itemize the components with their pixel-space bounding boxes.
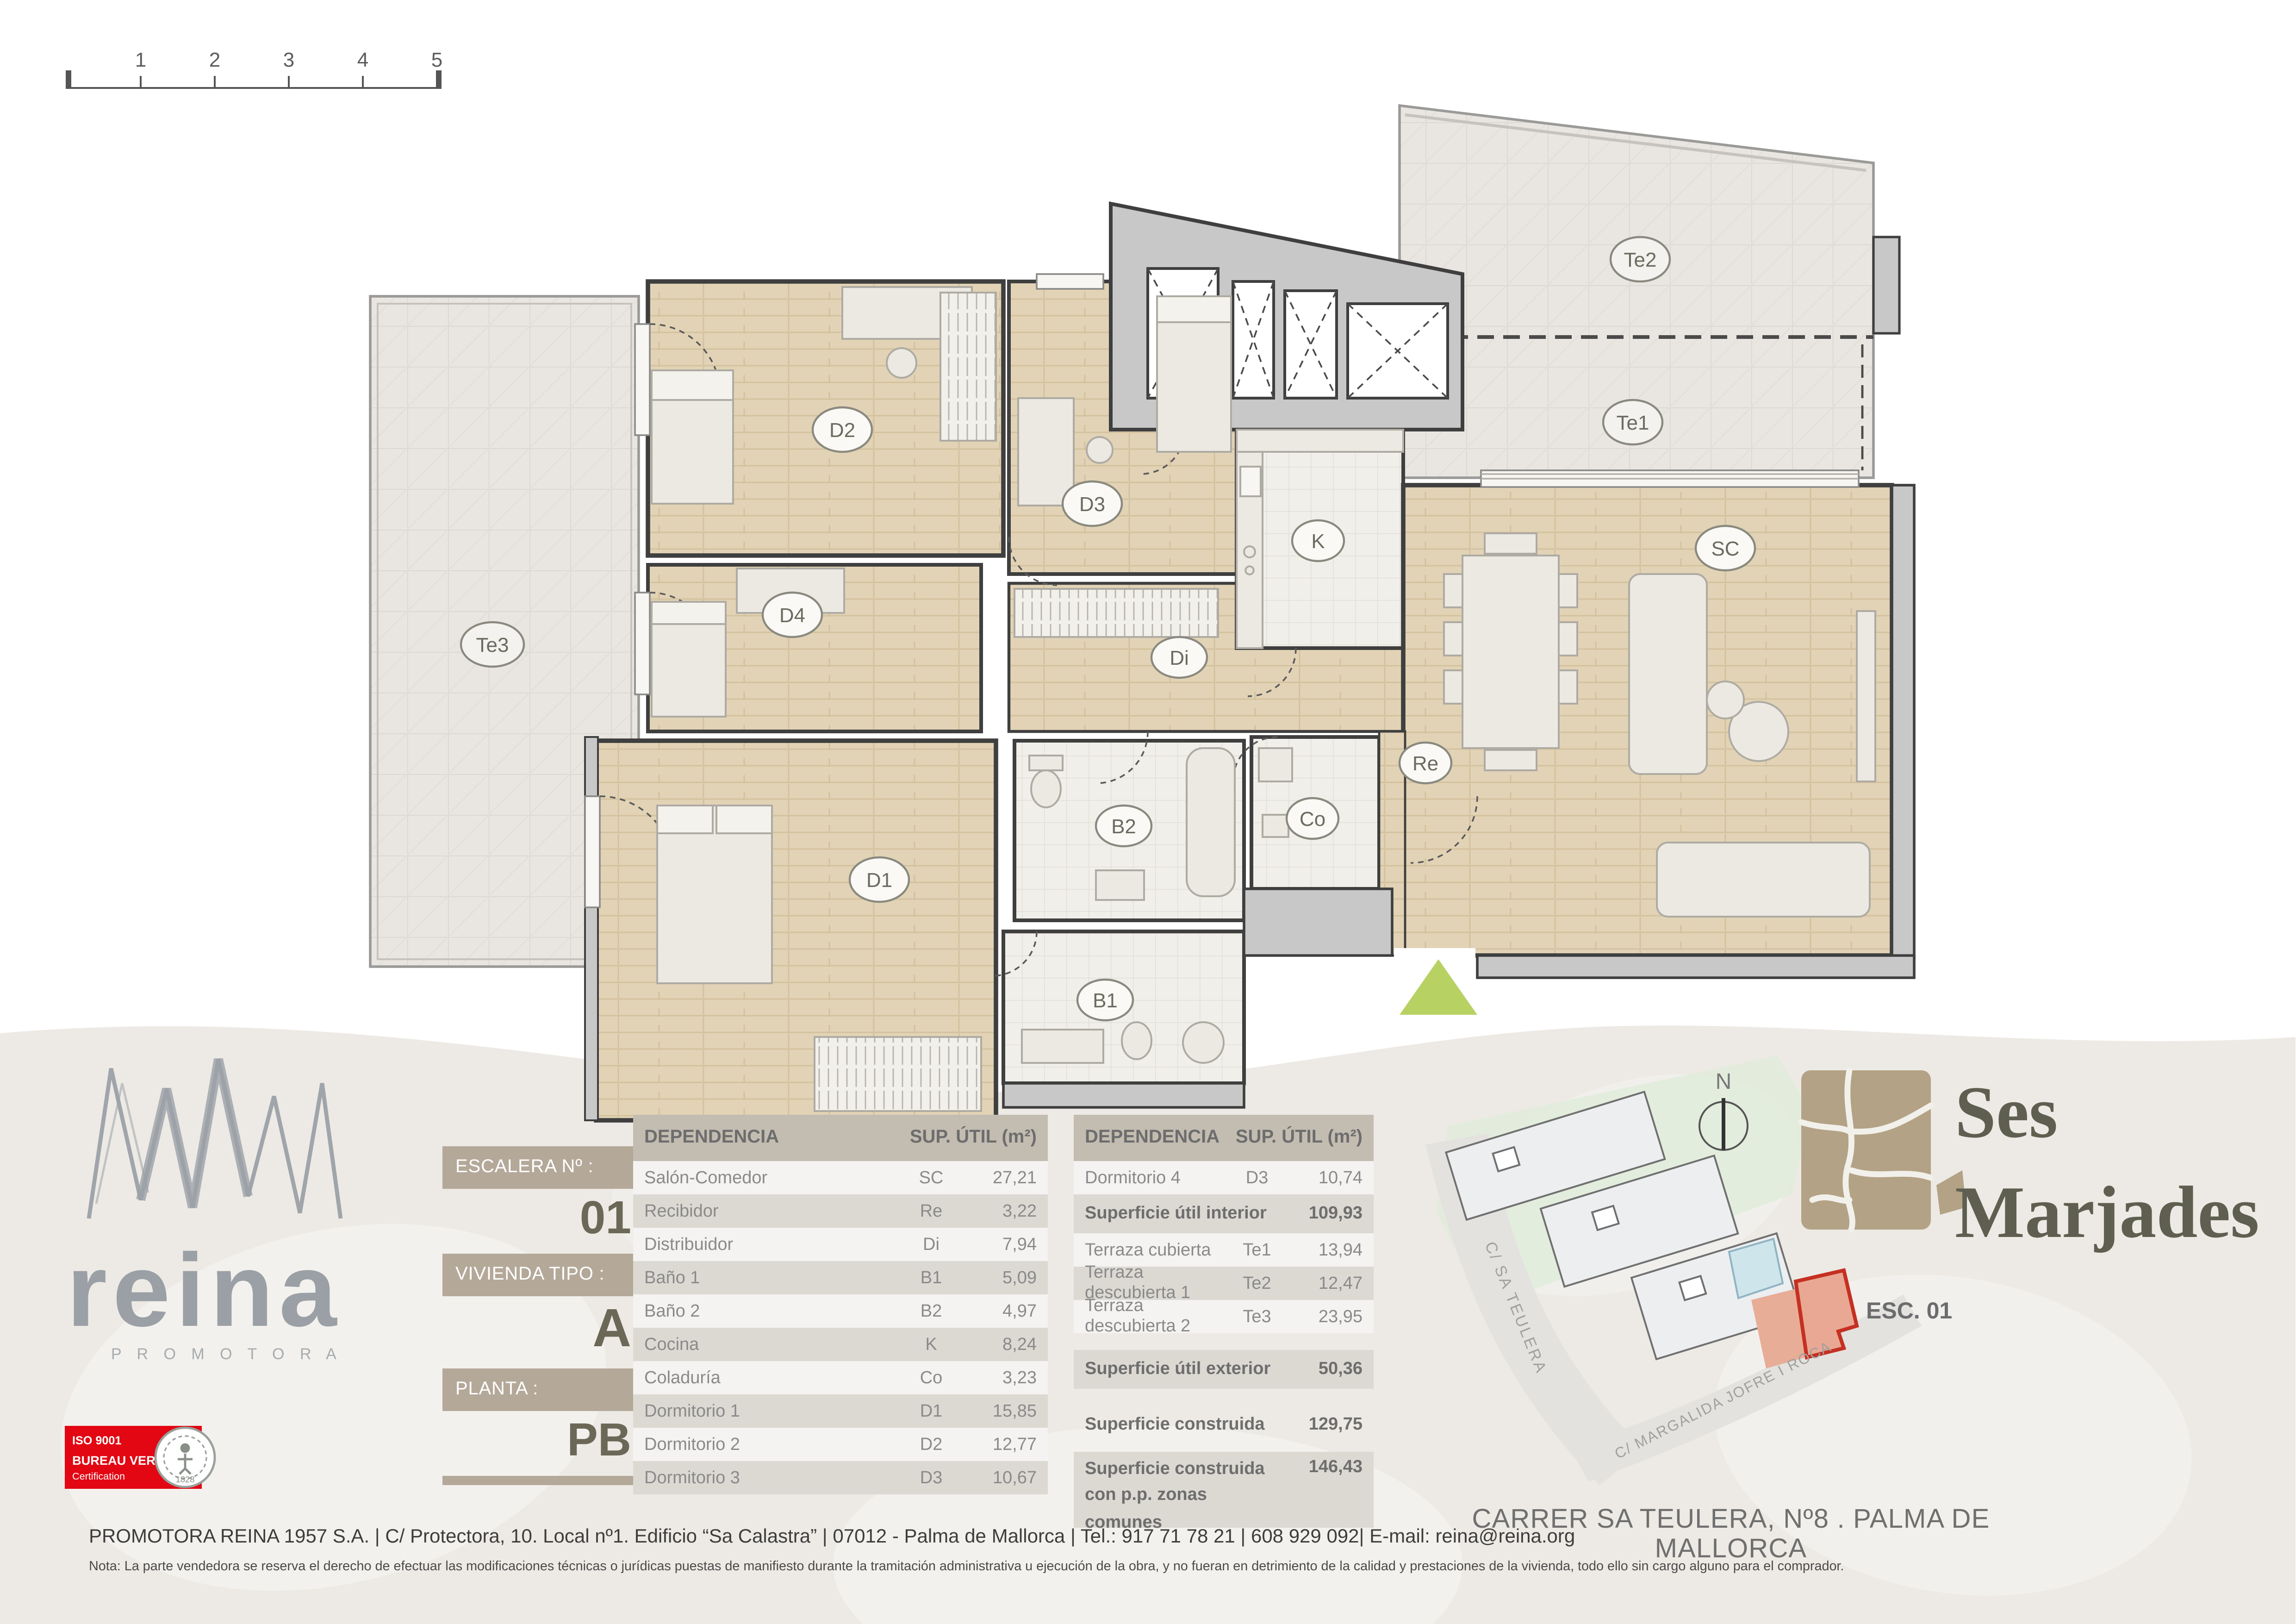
table-row: DistribuidorDi7,94 [633,1228,1048,1261]
vivienda-label: VIVIENDA TIPO : [442,1254,641,1296]
escalera-label: ESCALERA Nº : [442,1146,641,1189]
svg-text:1: 1 [135,49,146,71]
iso-line3: Certification [72,1470,125,1482]
table-row: ColaduríaCo3,23 [633,1361,1048,1394]
esc-01-label: ESC. 01 [1866,1298,1952,1324]
room-label-d2: D2 [829,419,855,442]
bureau-veritas-seal-icon: 1828 [156,1428,215,1487]
vivienda-value: A [442,1296,641,1368]
table-row: Dormitorio 4D310,74 [1074,1161,1374,1194]
scale-ruler-numbers: 1 2 3 4 5 [135,49,442,71]
scale-ruler [68,70,439,89]
room-label-d1: D1 [866,869,892,892]
table-row: Baño 2B24,97 [633,1294,1048,1328]
room-label-d3: D3 [1079,493,1105,516]
seal-year: 1828 [176,1474,195,1484]
table-row: CocinaK8,24 [633,1328,1048,1361]
surfaces-table-right: DEPENDENCIA SUP. ÚTIL (m²) Dormitorio 4D… [1074,1115,1374,1528]
table-row-total: Superficie construida129,75 [1074,1405,1374,1444]
footer-note: Nota: La parte vendedora se reserva el d… [89,1557,1844,1574]
surfaces-table-left: DEPENDENCIA SUP. ÚTIL (m²) Salón-Comedor… [633,1115,1048,1494]
table-row-total: Superficie útil exterior50,36 [1074,1350,1374,1389]
svg-text:4: 4 [357,49,368,71]
room-label-te2: Te2 [1624,249,1657,271]
room-label-d4: D4 [779,604,805,627]
table-row-total: Superficie construidacon p.p. zonas comu… [1074,1452,1374,1528]
table-row: Terraza descubierta 1Te212,47 [1074,1267,1374,1300]
room-label-k: K [1311,530,1325,553]
reina-promotora: P R O M O T O R A [111,1345,342,1363]
panel-bottom-bar [442,1476,641,1485]
svg-text:N: N [1716,1069,1732,1094]
escalera-value: 01 [442,1189,641,1254]
iso-line1: ISO 9001 [72,1434,121,1447]
room-label-b1: B1 [1093,989,1118,1012]
table-row: Dormitorio 3D310,67 [633,1461,1048,1494]
table-row: Dormitorio 2D212,77 [633,1428,1048,1461]
col-sup-util: SUP. ÚTIL (m²) [1236,1128,1363,1148]
room-label-di: Di [1170,647,1189,669]
room-label-re: Re [1412,752,1438,775]
room-label-b2: B2 [1111,815,1136,838]
iso-badge: ISO 9001 BUREAU VERITAS Certification 18… [65,1426,215,1489]
table-row: Terraza descubierta 2Te323,95 [1074,1300,1374,1333]
col-dependencia: DEPENDENCIA [644,1128,779,1148]
room-label-sc: SC [1711,537,1739,560]
table-row: RecibidorRe3,22 [633,1194,1048,1228]
plan-sheet: 1 2 3 4 5 [0,0,2296,1624]
table-row: Dormitorio 1D115,85 [633,1394,1048,1428]
unit-id-panel: ESCALERA Nº : 01 VIVIENDA TIPO : A PLANT… [442,1146,641,1485]
project-name-line1: Ses [1955,1071,2058,1153]
svg-text:2: 2 [209,49,220,71]
project-name-line2: Marjades [1955,1171,2259,1253]
table-row: Baño 1B15,09 [633,1261,1048,1294]
room-label-co: Co [1300,808,1325,831]
table-row: Salón-ComedorSC27,21 [633,1161,1048,1194]
footer-company-line: PROMOTORA REINA 1957 S.A. | C/ Protector… [89,1526,1575,1548]
svg-text:5: 5 [431,49,442,71]
table-row: Terraza cubiertaTe113,94 [1074,1233,1374,1267]
planta-value: PB [442,1411,641,1476]
svg-text:3: 3 [283,49,294,71]
room-label-te3: Te3 [476,634,509,656]
table-row-total: Superficie útil interior109,93 [1074,1194,1374,1233]
room-label-te1: Te1 [1617,412,1649,434]
col-sup-util: SUP. ÚTIL (m²) [910,1128,1037,1148]
planta-label: PLANTA : [442,1368,641,1411]
entrance [1394,948,1477,1015]
col-dependencia: DEPENDENCIA [1085,1128,1220,1148]
reina-wordmark: reina [67,1232,342,1348]
